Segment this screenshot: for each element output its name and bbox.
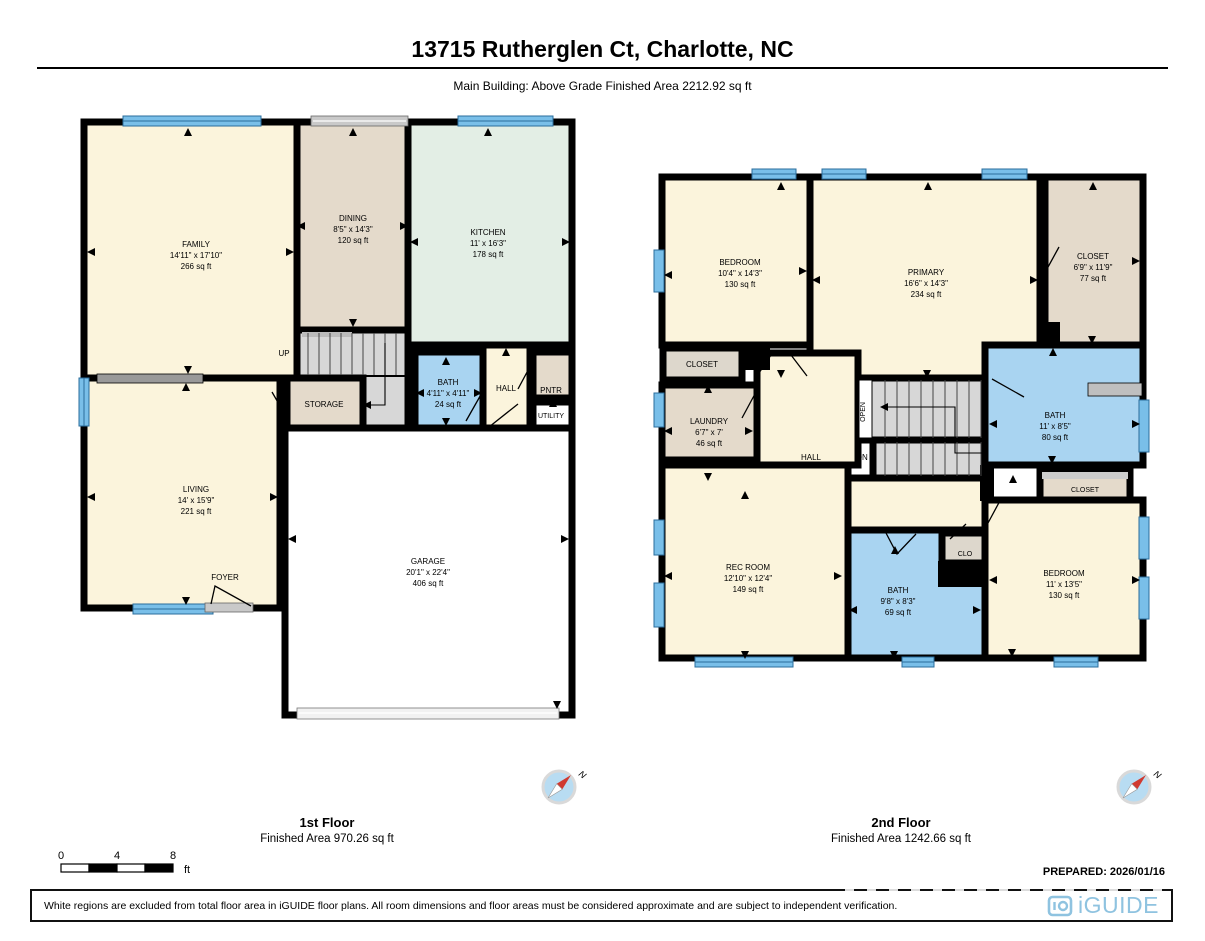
room-bath-upper: [985, 345, 1143, 465]
iguide-logo-icon: [1047, 894, 1073, 918]
window: [654, 583, 664, 627]
room-area: 178 sq ft: [473, 250, 504, 259]
room-name: CLO: [958, 551, 973, 558]
room-name: HALL: [496, 384, 517, 393]
scale-tick: 8: [170, 850, 176, 862]
floor2-caption: 2nd Floor Finished Area 1242.66 sq ft: [771, 815, 1031, 847]
room-name: FOYER: [211, 573, 239, 582]
stairs-open-label: OPEN: [860, 402, 867, 422]
room-dims: 9'8" x 8'3": [881, 597, 916, 606]
window: [1139, 400, 1149, 452]
room-dims: 11' x 13'5": [1046, 580, 1082, 589]
stair-divider: [872, 438, 985, 441]
front-door-threshold: [205, 603, 253, 612]
room-dims: 16'6" x 14'3": [904, 279, 948, 288]
window: [1139, 517, 1149, 559]
page-title: 13715 Rutherglen Ct, Charlotte, NC: [0, 36, 1205, 63]
room-name: PNTR: [540, 386, 562, 395]
prepared-date: PREPARED: 2026/01/16: [1043, 866, 1165, 878]
room-dims: 10'4" x 14'3": [718, 269, 762, 278]
room-area: 80 sq ft: [1042, 433, 1069, 442]
wall-segment: [980, 465, 994, 501]
room-dims: 14' x 15'9": [178, 496, 215, 505]
room-area: 149 sq ft: [733, 585, 764, 594]
room-dims: 11' x 16'3": [470, 239, 506, 248]
window: [1139, 577, 1149, 619]
flush-beam: [97, 374, 203, 383]
iguide-logo: iGUIDE: [1047, 892, 1159, 919]
room-area: 406 sq ft: [413, 579, 444, 588]
floor2-area: Finished Area 1242.66 sq ft: [771, 832, 1031, 847]
room-dims: 8'5" x 14'3": [333, 225, 373, 234]
disclaimer-text: White regions are excluded from total fl…: [44, 900, 897, 912]
room-family: [84, 122, 297, 378]
wall-segment: [408, 345, 417, 430]
room-name: PRIMARY: [908, 268, 945, 277]
wall-segment: [527, 348, 534, 430]
room-name: BATH: [438, 378, 459, 387]
room-area: 77 sq ft: [1080, 274, 1107, 283]
scale-tick: 4: [114, 850, 120, 862]
stair-divider: [873, 476, 985, 479]
room-name: CLOSET: [1077, 252, 1109, 261]
floorplan-page: 13715 Rutherglen Ct, Charlotte, NC Main …: [0, 0, 1205, 941]
scale-segment: [89, 864, 117, 872]
compass-icon: N: [537, 762, 587, 812]
room-clo: [942, 533, 988, 563]
room-name: BEDROOM: [719, 258, 761, 267]
room-name: CLOSET: [1071, 487, 1100, 494]
floor2-plan: BEDROOM 10'4" x 14'3" 130 sq ft PRIMARY …: [650, 165, 1155, 675]
compass-north-label: N: [577, 769, 587, 781]
wall-segment: [938, 561, 988, 587]
room-name: LAUNDRY: [690, 417, 729, 426]
building-area-subtitle: Main Building: Above Grade Finished Area…: [0, 79, 1205, 93]
floor1-caption: 1st Floor Finished Area 970.26 sq ft: [197, 815, 457, 847]
stairs-dn-label: DN: [856, 453, 868, 462]
room-name: UTILITY: [538, 413, 564, 420]
iguide-logo-text: iGUIDE: [1078, 892, 1159, 919]
room-name: KITCHEN: [470, 228, 505, 237]
room-dims: 20'1" x 22'4": [406, 568, 450, 577]
floor2-name: 2nd Floor: [771, 815, 1031, 832]
room-area: 234 sq ft: [911, 290, 942, 299]
dimension-arrow: [1009, 475, 1017, 483]
scale-tick: 0: [58, 850, 64, 862]
room-name: STORAGE: [305, 400, 344, 409]
room-dims: 4'11" x 4'11": [427, 389, 470, 398]
scale-unit: ft: [184, 864, 190, 876]
window: [654, 520, 664, 555]
room-dims: 14'11" x 17'10": [170, 251, 222, 260]
room-name: BATH: [888, 586, 909, 595]
closet-shelf: [1042, 472, 1128, 479]
title-divider: [37, 67, 1168, 69]
floor1-plan: FAMILY 14'11" x 17'10" 266 sq ft DINING …: [75, 112, 580, 724]
scale-segment: [61, 864, 89, 872]
scale-segment: [117, 864, 145, 872]
room-area: 266 sq ft: [181, 262, 212, 271]
floor1-area: Finished Area 970.26 sq ft: [197, 832, 457, 847]
room-area: 120 sq ft: [338, 236, 369, 245]
room-name: BEDROOM: [1043, 569, 1085, 578]
room-name: REC ROOM: [726, 563, 770, 572]
room-area: 130 sq ft: [725, 280, 756, 289]
floor1-name: 1st Floor: [197, 815, 457, 832]
window: [654, 393, 664, 427]
room-area: 130 sq ft: [1049, 591, 1080, 600]
room-dims: 12'10" x 12'4": [724, 574, 772, 583]
compass-icon: N: [1112, 762, 1162, 812]
scale-segment: [145, 864, 173, 872]
stairs-up-label: UP: [278, 349, 289, 358]
room-name: LIVING: [183, 485, 209, 494]
room-dims: 6'7" x 7': [695, 428, 723, 437]
stair-divider: [297, 375, 408, 377]
window: [654, 250, 664, 292]
room-bedroom2: [985, 500, 1143, 658]
room-rec: [662, 465, 848, 658]
room-name: HALL: [801, 453, 822, 462]
room-area: 221 sq ft: [181, 507, 212, 516]
room-area: 46 sq ft: [696, 439, 723, 448]
room-name: GARAGE: [411, 557, 445, 566]
hall2-corridor: [848, 478, 985, 530]
room-name: BATH: [1045, 411, 1066, 420]
bath-counter: [1088, 383, 1142, 396]
wall-segment: [1043, 322, 1060, 343]
compass-north-label: N: [1152, 769, 1162, 781]
room-dims: 6'9" x 11'9": [1074, 263, 1113, 272]
stair-landing-edge: [302, 332, 352, 337]
room-area: 24 sq ft: [435, 400, 462, 409]
room-name: DINING: [339, 214, 367, 223]
stairs-down-lower: [873, 440, 985, 478]
room-area: 69 sq ft: [885, 608, 912, 617]
room-name: CLOSET: [686, 360, 718, 369]
watermark-artifact: [845, 887, 1167, 893]
room-hall2: [757, 353, 858, 465]
scale-bar: 0 4 8 ft: [55, 846, 225, 882]
room-dims: 11' x 8'5": [1039, 422, 1071, 431]
footer: White regions are excluded from total fl…: [30, 889, 1173, 922]
wall-segment: [740, 343, 770, 370]
room-name: FAMILY: [182, 240, 211, 249]
